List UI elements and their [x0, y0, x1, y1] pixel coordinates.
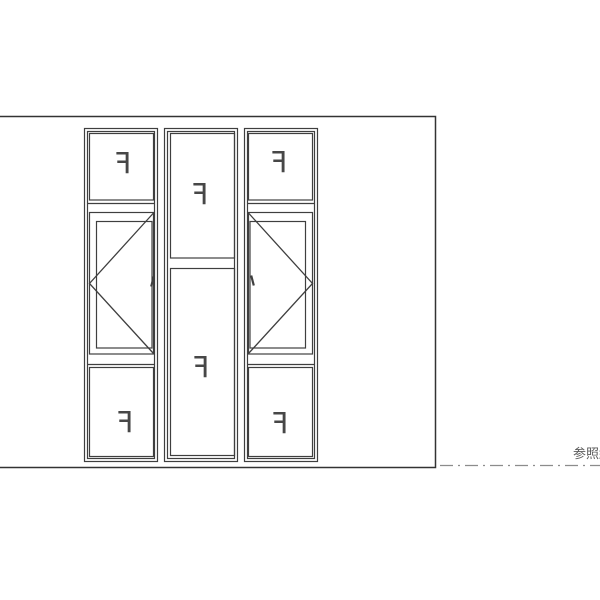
- cad-drawing-page: { "drawing": { "title": "window-elevatio…: [0, 0, 600, 600]
- right-casement-sash: [250, 222, 306, 349]
- fix-mark-center-bottom: F: [193, 354, 210, 383]
- fix-mark-right-bottom: F: [272, 410, 289, 439]
- wall-outline: [0, 117, 436, 468]
- fix-mark-right-top: F: [271, 149, 288, 178]
- right-casement-handle-tick: [251, 276, 254, 286]
- left-casement-swing-triangle: [90, 213, 154, 354]
- reference-label: 参照線: [573, 447, 600, 463]
- right-casement-swing-triangle: [249, 213, 313, 354]
- right-casement-opening: [249, 213, 313, 355]
- left-casement-sash: [97, 222, 153, 349]
- fix-mark-left-bottom: F: [117, 409, 134, 438]
- fix-mark-center-top: F: [192, 181, 209, 210]
- drawing-canvas[interactable]: [0, 0, 600, 600]
- fix-mark-left-top: F: [115, 150, 132, 179]
- left-casement-opening: [90, 213, 154, 355]
